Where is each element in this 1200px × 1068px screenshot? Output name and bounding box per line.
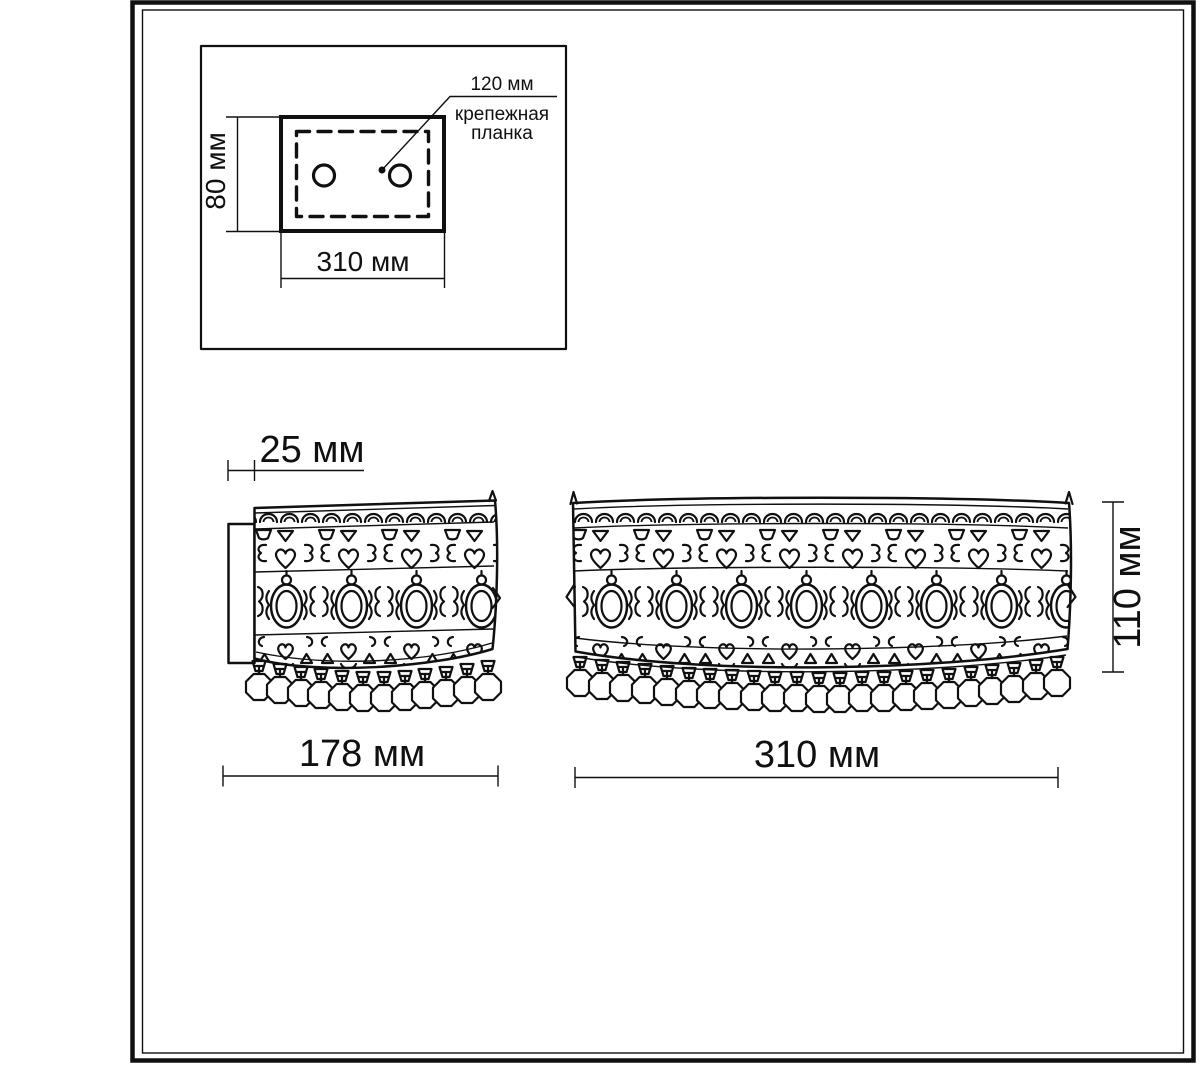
front-height-label: 110 мм — [1107, 525, 1149, 648]
callout-value-label: 120 мм — [470, 74, 533, 95]
drawing-page: 120 мм крепежная планка 80 мм 310 мм 25 … — [0, 0, 1200, 1068]
side-depth-label: 25 мм — [259, 429, 364, 471]
lamp-side-view: 25 мм — [223, 429, 502, 787]
front-bead-row — [567, 662, 1070, 712]
detail-width-label: 310 мм — [317, 246, 410, 277]
callout-name-line1: крепежная — [455, 104, 549, 125]
mounting-plate-dashed-outline — [297, 132, 429, 217]
wall-bracket — [229, 524, 255, 663]
side-body-ornament — [248, 500, 502, 678]
mounting-hole-right — [390, 165, 411, 186]
mounting-hole-left — [314, 165, 335, 186]
side-width-label: 178 мм — [299, 733, 425, 775]
mounting-plate-outline — [281, 117, 444, 231]
detail-height-label: 80 мм — [200, 132, 231, 209]
technical-drawing: 120 мм крепежная планка 80 мм 310 мм 25 … — [0, 0, 1200, 1068]
front-height-dimension: 110 мм — [1102, 502, 1149, 672]
callout-name-line2: планка — [471, 123, 533, 144]
side-depth-dimension: 25 мм — [228, 429, 365, 481]
detail-height-dimension: 80 мм — [200, 117, 281, 232]
front-width-dimension: 310 мм — [575, 734, 1058, 788]
detail-width-dimension: 310 мм — [281, 231, 445, 288]
lamp-front-view: 110 мм 310 мм — [567, 492, 1150, 788]
side-width-dimension: 178 мм — [223, 733, 498, 787]
front-width-label: 310 мм — [754, 734, 880, 776]
mounting-plate-detail: 120 мм крепежная планка 80 мм 310 мм — [200, 46, 566, 349]
